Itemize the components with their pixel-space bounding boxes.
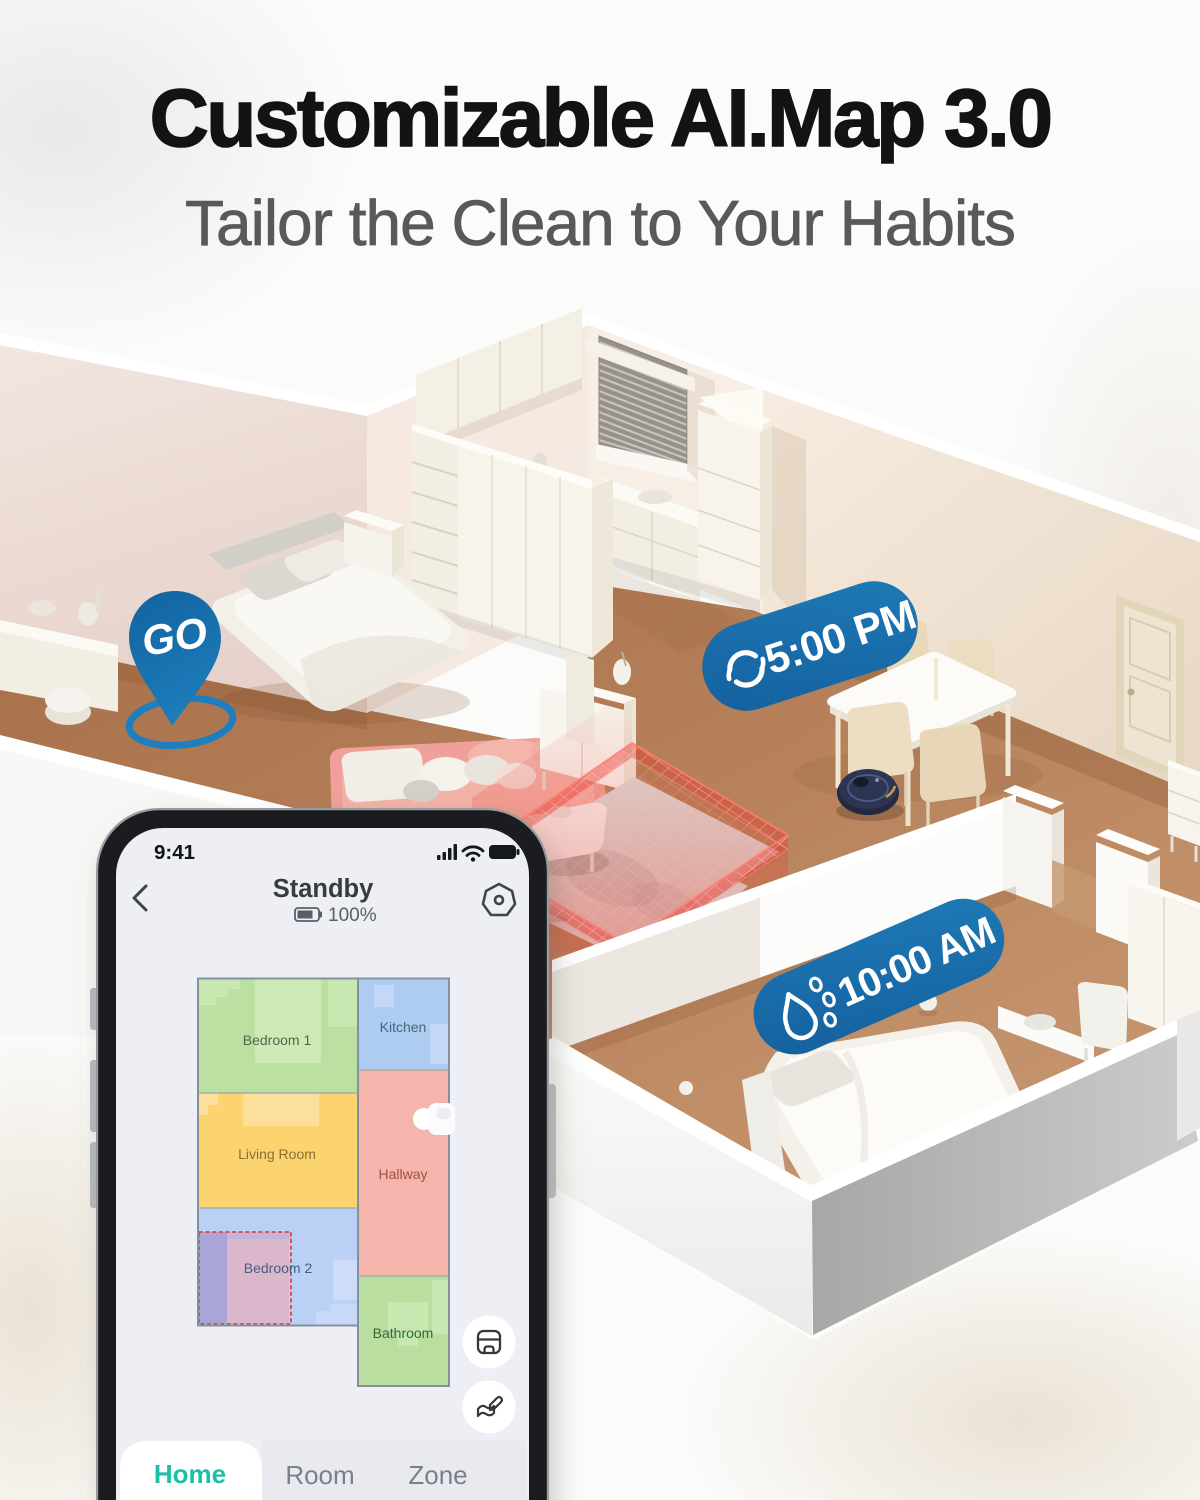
svg-text:Bedroom 1: Bedroom 1 [243, 1032, 312, 1048]
svg-text:Hallway: Hallway [378, 1166, 427, 1182]
svg-text:Home: Home [154, 1459, 226, 1489]
svg-text:Bedroom 2: Bedroom 2 [244, 1260, 313, 1276]
svg-text:Zone: Zone [408, 1460, 467, 1490]
svg-text:Tailor the Clean to Your Habit: Tailor the Clean to Your Habits [185, 187, 1015, 259]
svg-text:Customizable AI.Map 3.0: Customizable AI.Map 3.0 [150, 73, 1051, 164]
svg-text:9:41: 9:41 [154, 841, 195, 864]
svg-text:Room: Room [285, 1460, 354, 1490]
svg-text:Standby: Standby [273, 875, 374, 903]
svg-text:Kitchen: Kitchen [380, 1019, 427, 1035]
svg-text:Bathroom: Bathroom [373, 1325, 434, 1341]
svg-text:Living Room: Living Room [238, 1146, 316, 1162]
svg-text:100%: 100% [328, 905, 377, 926]
